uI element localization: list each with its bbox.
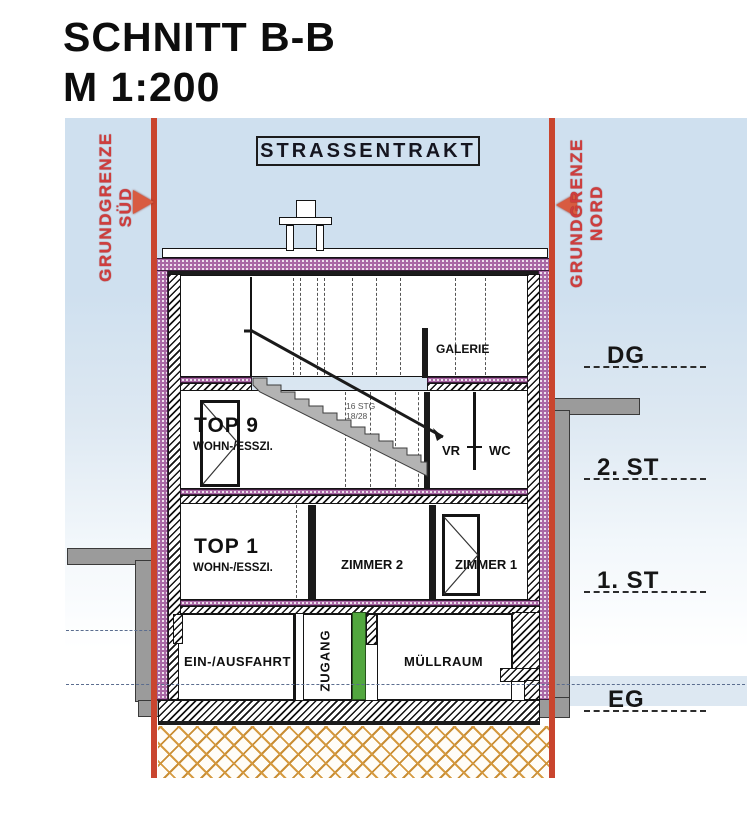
- room-label-wc: WC: [489, 443, 511, 458]
- room-label-zimmer2: ZIMMER 2: [341, 557, 403, 572]
- room-label-galerie: GALERIE: [436, 342, 489, 356]
- level-line-dg: [584, 366, 706, 368]
- room-label-top9-sub: WOHN-/ESSZI.: [193, 441, 273, 453]
- section-drawing-page: SCHNITT B-B M 1:200: [0, 0, 747, 830]
- strassentrakt-label: STRASSENTRAKT: [256, 136, 480, 166]
- stair-flight: [253, 378, 427, 476]
- room-label-einausfahrt: EIN-/AUSFAHRT: [184, 654, 291, 669]
- room-label-vr: VR: [442, 443, 460, 458]
- room-label-zugang: ZUGANG: [318, 624, 333, 698]
- room-label-muellraum: MÜLLRAUM: [404, 654, 483, 669]
- boundary-label-north: GRUNDGRENZE NORD: [567, 121, 609, 305]
- eg-datum-line: [66, 684, 745, 685]
- level-line-eg: [584, 710, 706, 712]
- datum-line-left: [66, 630, 152, 631]
- door-zimmer1-swing: [444, 517, 478, 555]
- stair-note: 16 STG 18/28: [346, 401, 375, 421]
- room-label-top9: TOP 9: [194, 414, 259, 438]
- boundary-line-south: [151, 118, 157, 778]
- room-label-top1: TOP 1: [194, 535, 259, 559]
- boundary-line-north: [549, 118, 555, 778]
- level-line-2st: [584, 478, 706, 480]
- level-line-1st: [584, 591, 706, 593]
- room-label-zimmer1: ZIMMER 1: [455, 557, 517, 572]
- room-label-top1-sub: WOHN-/ESSZI.: [193, 562, 273, 574]
- boundary-label-south: GRUNDGRENZE SÜD: [96, 115, 138, 299]
